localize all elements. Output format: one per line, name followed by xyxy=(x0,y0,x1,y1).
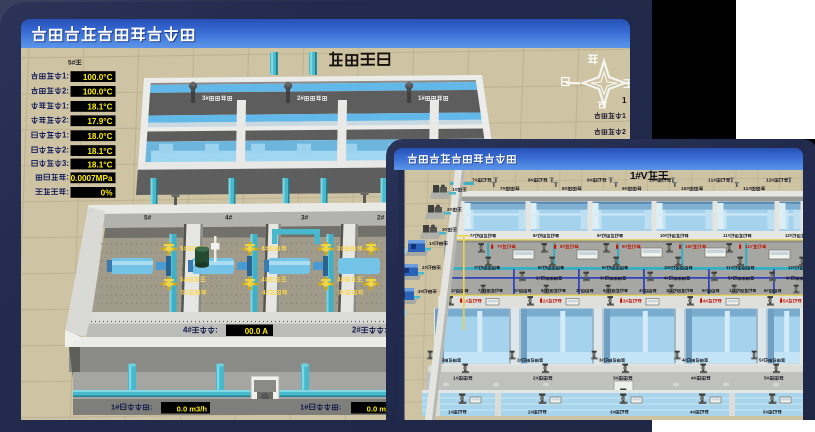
svg-text:10#: 10# xyxy=(666,288,674,293)
svg-text:10#: 10# xyxy=(664,265,672,270)
svg-text:7#: 7# xyxy=(470,233,475,238)
svg-text:2#: 2# xyxy=(543,299,549,304)
svg-text:2#: 2# xyxy=(536,276,541,281)
svg-text:3#: 3# xyxy=(576,288,581,293)
svg-text:1#V: 1#V xyxy=(630,170,648,182)
svg-text:5#: 5# xyxy=(180,245,188,252)
svg-text::: : xyxy=(66,173,69,182)
svg-text:0.0007MPa: 0.0007MPa xyxy=(71,174,113,183)
svg-text:4#: 4# xyxy=(262,289,270,296)
svg-text:2#: 2# xyxy=(352,326,361,335)
svg-text:2#: 2# xyxy=(517,358,522,363)
svg-text:12#: 12# xyxy=(766,178,774,184)
svg-text:3#: 3# xyxy=(623,299,629,304)
svg-text:1: 1 xyxy=(622,96,627,105)
svg-text:12#: 12# xyxy=(785,233,793,238)
svg-text:4#: 4# xyxy=(691,376,697,382)
svg-text:18.1°C: 18.1°C xyxy=(87,147,112,156)
svg-text:18.0°C: 18.0°C xyxy=(87,132,112,141)
svg-text:100.0°C: 100.0°C xyxy=(83,73,113,82)
svg-text:3#: 3# xyxy=(337,245,345,252)
svg-text:7#: 7# xyxy=(474,265,479,270)
svg-text:18.1°C: 18.1°C xyxy=(87,103,112,112)
svg-text::: : xyxy=(66,187,69,196)
svg-text:8#: 8# xyxy=(541,288,546,293)
svg-text:1:: 1: xyxy=(62,101,69,110)
svg-text:2#: 2# xyxy=(528,410,534,415)
svg-text:1#: 1# xyxy=(300,403,309,412)
svg-text:18.1°C: 18.1°C xyxy=(87,160,112,169)
svg-text:4#: 4# xyxy=(682,358,687,363)
svg-text:3#: 3# xyxy=(202,96,209,102)
svg-text:12#: 12# xyxy=(788,265,796,270)
svg-text:8#: 8# xyxy=(528,178,534,184)
svg-text:4#: 4# xyxy=(183,326,192,335)
svg-text:0%: 0% xyxy=(101,189,114,198)
svg-text:9#: 9# xyxy=(622,244,628,249)
svg-text:1:: 1: xyxy=(62,131,69,140)
svg-text:3#: 3# xyxy=(442,227,448,233)
svg-text:10#: 10# xyxy=(660,233,668,238)
svg-text:3#: 3# xyxy=(600,276,605,281)
svg-text:5#: 5# xyxy=(702,288,707,293)
svg-text:1#: 1# xyxy=(451,288,456,293)
svg-text:2#: 2# xyxy=(377,215,385,222)
svg-text:3#: 3# xyxy=(301,215,309,222)
svg-text:1#: 1# xyxy=(452,187,458,193)
svg-text:3#: 3# xyxy=(338,289,346,296)
svg-text:5#: 5# xyxy=(763,410,769,415)
svg-text:4#: 4# xyxy=(703,299,709,304)
svg-text:11#: 11# xyxy=(708,178,716,184)
svg-text:4#: 4# xyxy=(225,215,233,222)
svg-text:2:: 2: xyxy=(62,146,69,155)
svg-text:4#: 4# xyxy=(690,410,696,415)
svg-text:4#: 4# xyxy=(664,276,669,281)
svg-text:9#: 9# xyxy=(587,178,593,184)
svg-text:10#: 10# xyxy=(685,244,693,249)
svg-text:5#: 5# xyxy=(764,376,770,382)
svg-text:2:: 2: xyxy=(62,86,69,95)
svg-text:0.0 m3/h: 0.0 m3/h xyxy=(177,404,208,413)
svg-text:3:: 3: xyxy=(62,159,69,168)
svg-text:1#: 1# xyxy=(418,96,425,102)
svg-text:9#: 9# xyxy=(597,233,602,238)
svg-text:9#: 9# xyxy=(603,288,608,293)
svg-text:3#: 3# xyxy=(599,358,604,363)
svg-text:5#: 5# xyxy=(181,289,189,296)
svg-text:5#: 5# xyxy=(144,215,152,222)
svg-text:4#: 4# xyxy=(261,245,269,252)
svg-text::: : xyxy=(150,403,153,412)
svg-text:8#: 8# xyxy=(560,244,566,249)
svg-text:2#: 2# xyxy=(533,376,539,382)
svg-text:2#: 2# xyxy=(422,265,428,270)
svg-text:2#: 2# xyxy=(297,96,304,102)
svg-text::: : xyxy=(215,326,218,335)
svg-text:1#: 1# xyxy=(429,241,435,246)
svg-text:4#: 4# xyxy=(639,288,644,293)
svg-text:1:: 1: xyxy=(62,72,69,81)
svg-text:1#: 1# xyxy=(453,376,459,382)
svg-text:2:: 2: xyxy=(62,116,69,125)
svg-text:6#: 6# xyxy=(786,276,791,281)
svg-text:1#: 1# xyxy=(448,410,454,415)
svg-text:7#: 7# xyxy=(497,244,503,249)
svg-text:11#: 11# xyxy=(745,244,753,249)
svg-text:1: 1 xyxy=(622,113,626,120)
svg-text:100.0°C: 100.0°C xyxy=(83,88,113,97)
svg-text:2: 2 xyxy=(622,129,626,136)
svg-text:5#: 5# xyxy=(728,276,733,281)
svg-text:17.9°C: 17.9°C xyxy=(87,117,112,126)
svg-text:00.0 A: 00.0 A xyxy=(245,327,268,336)
svg-text:3#: 3# xyxy=(337,276,345,283)
svg-text:11#: 11# xyxy=(726,265,734,270)
svg-text:9#: 9# xyxy=(602,265,607,270)
svg-text:3#: 3# xyxy=(418,289,424,294)
svg-text:5#: 5# xyxy=(759,358,764,363)
svg-text:2#: 2# xyxy=(447,207,453,213)
svg-text:1#: 1# xyxy=(111,403,120,412)
svg-text:5#: 5# xyxy=(783,299,789,304)
svg-text:11#: 11# xyxy=(729,288,737,293)
svg-text:7#: 7# xyxy=(478,288,483,293)
svg-text:3#: 3# xyxy=(610,410,616,415)
svg-text:4#: 4# xyxy=(261,276,269,283)
svg-text:8#: 8# xyxy=(533,233,538,238)
svg-text:6#: 6# xyxy=(764,288,769,293)
svg-text::: : xyxy=(339,403,342,412)
svg-text:10#: 10# xyxy=(649,178,657,184)
svg-text:11#: 11# xyxy=(723,233,731,238)
svg-text:5#: 5# xyxy=(68,60,76,67)
svg-text:8#: 8# xyxy=(538,265,543,270)
svg-text:2#: 2# xyxy=(514,288,519,293)
svg-text:5#: 5# xyxy=(180,276,188,283)
